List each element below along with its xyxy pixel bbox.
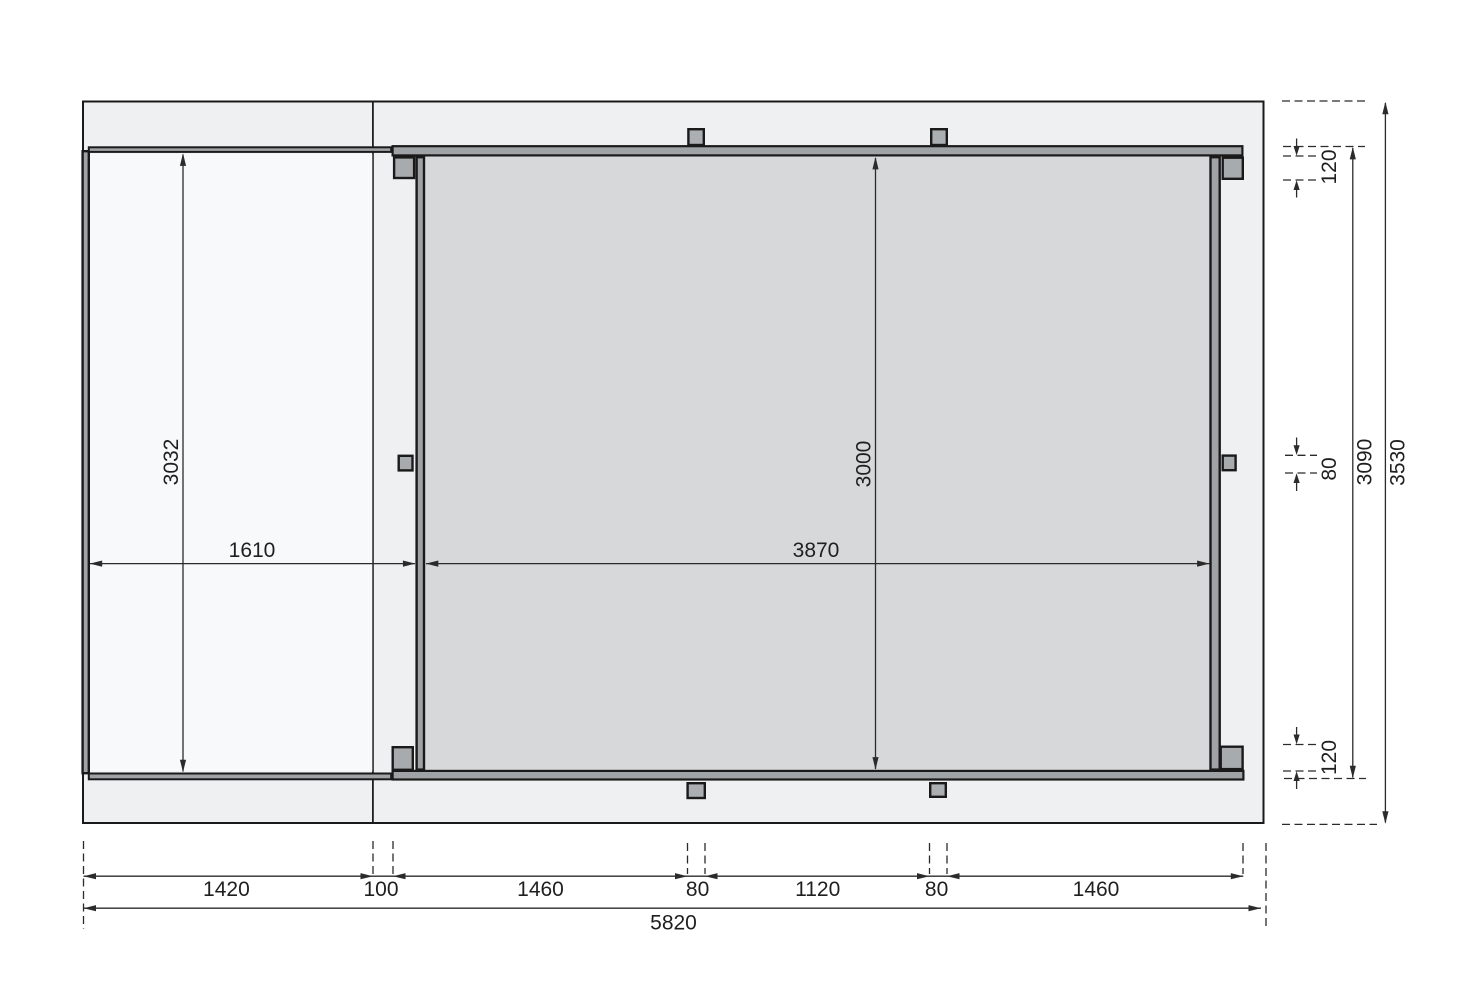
svg-text:3032: 3032 bbox=[160, 439, 183, 486]
svg-text:80: 80 bbox=[1318, 457, 1341, 480]
svg-text:3530: 3530 bbox=[1387, 439, 1410, 486]
svg-text:5820: 5820 bbox=[650, 912, 697, 935]
svg-text:1460: 1460 bbox=[1073, 878, 1120, 901]
svg-text:120: 120 bbox=[1318, 149, 1341, 184]
svg-text:1610: 1610 bbox=[229, 539, 276, 562]
svg-text:3090: 3090 bbox=[1353, 439, 1376, 486]
svg-text:120: 120 bbox=[1318, 740, 1341, 775]
svg-text:100: 100 bbox=[363, 878, 398, 901]
svg-text:1120: 1120 bbox=[795, 878, 840, 901]
svg-text:80: 80 bbox=[925, 878, 948, 901]
svg-text:3870: 3870 bbox=[793, 539, 840, 562]
svg-text:1460: 1460 bbox=[517, 878, 564, 901]
svg-text:3000: 3000 bbox=[853, 441, 876, 488]
svg-text:80: 80 bbox=[686, 878, 709, 901]
svg-text:1420: 1420 bbox=[203, 878, 250, 901]
